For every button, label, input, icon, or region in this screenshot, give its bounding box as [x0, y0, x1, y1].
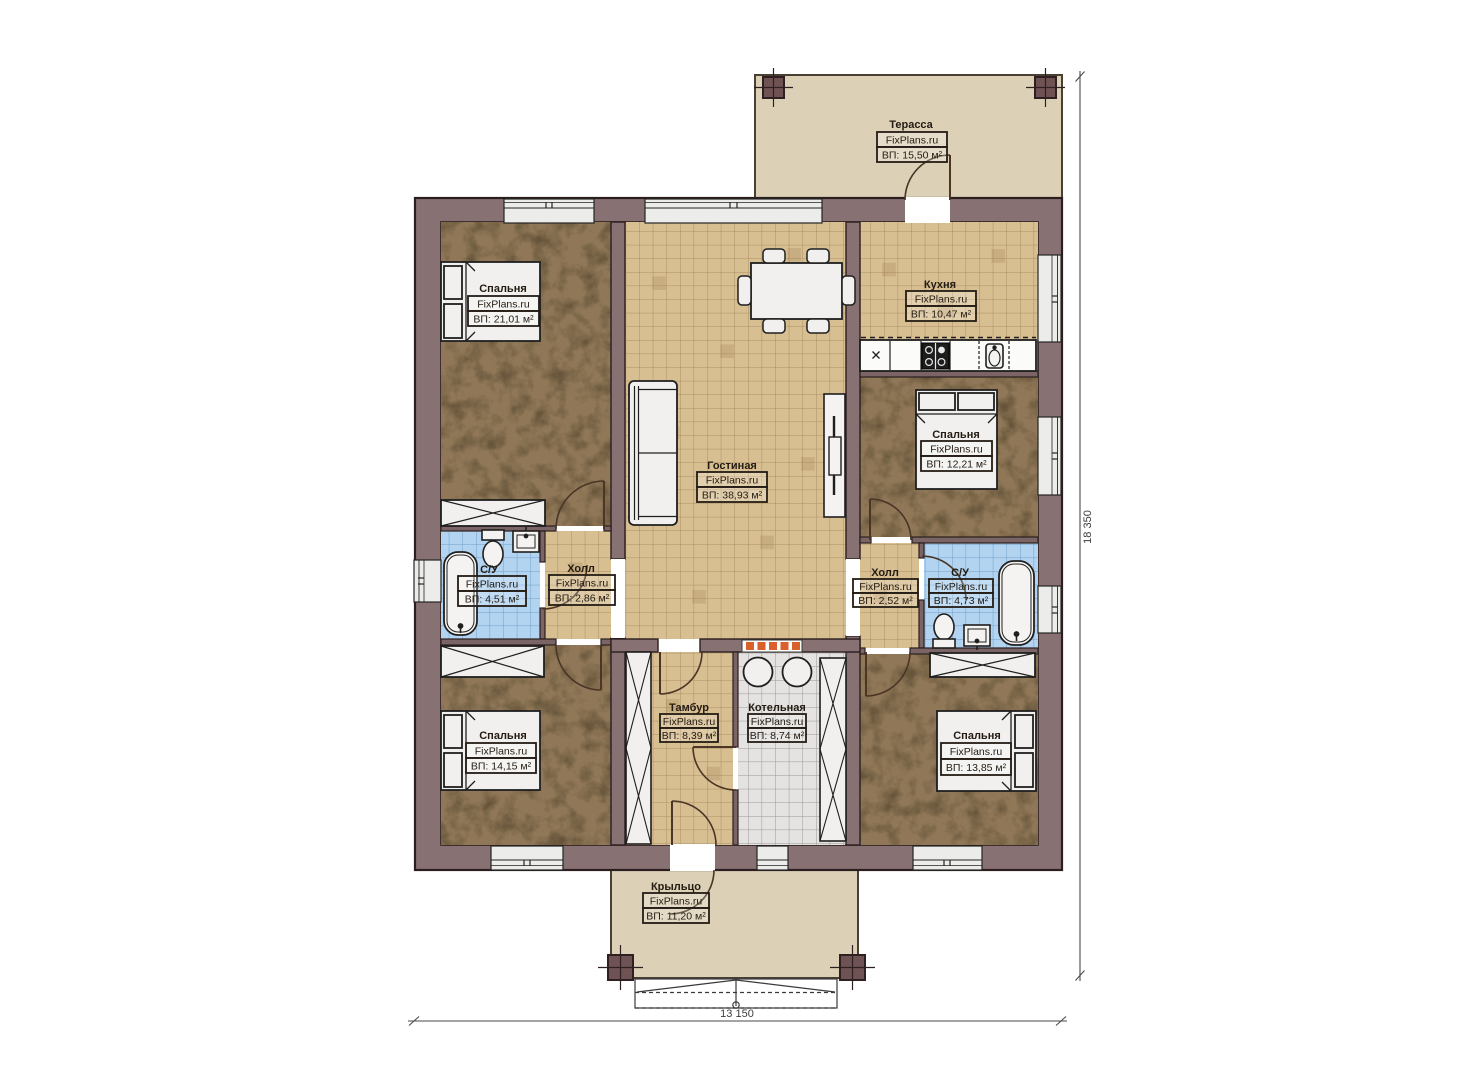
svg-text:ВП: 15,50 м²: ВП: 15,50 м² — [882, 150, 943, 162]
svg-text:FixPlans.ru: FixPlans.ru — [935, 581, 988, 593]
svg-text:ВП: 38,93 м²: ВП: 38,93 м² — [702, 490, 763, 502]
svg-text:Гостиная: Гостиная — [707, 460, 757, 472]
svg-text:С/У: С/У — [480, 564, 498, 576]
svg-text:ВП: 2,86 м²: ВП: 2,86 м² — [555, 593, 610, 605]
svg-text:FixPlans.ru: FixPlans.ru — [915, 294, 968, 306]
svg-text:Крыльцо: Крыльцо — [651, 881, 701, 893]
svg-text:ВП: 11,20 м²: ВП: 11,20 м² — [646, 911, 706, 923]
svg-text:ВП: 2,52 м²: ВП: 2,52 м² — [858, 595, 913, 607]
svg-text:ВП: 4,51 м²: ВП: 4,51 м² — [465, 594, 520, 606]
svg-text:ВП: 4,73 м²: ВП: 4,73 м² — [934, 595, 989, 607]
svg-text:ВП: 10,47 м²: ВП: 10,47 м² — [911, 309, 972, 321]
svg-text:FixPlans.ru: FixPlans.ru — [477, 299, 530, 311]
svg-text:FixPlans.ru: FixPlans.ru — [556, 578, 609, 590]
svg-text:ВП: 8,39 м²: ВП: 8,39 м² — [662, 730, 717, 742]
svg-text:Спальня: Спальня — [479, 730, 527, 742]
svg-text:Тамбур: Тамбур — [669, 702, 709, 714]
svg-text:FixPlans.ru: FixPlans.ru — [706, 475, 759, 487]
svg-text:ВП: 12,21 м²: ВП: 12,21 м² — [926, 459, 987, 471]
svg-text:18 350: 18 350 — [1082, 510, 1094, 544]
svg-text:Холл: Холл — [567, 563, 595, 575]
svg-text:Кухня: Кухня — [924, 279, 956, 291]
svg-text:Холл: Холл — [871, 567, 899, 579]
svg-text:ВП: 14,15 м²: ВП: 14,15 м² — [471, 761, 532, 773]
svg-text:FixPlans.ru: FixPlans.ru — [466, 579, 519, 591]
svg-text:Спальня: Спальня — [932, 429, 980, 441]
svg-text:FixPlans.ru: FixPlans.ru — [475, 746, 528, 758]
svg-text:Терасса: Терасса — [889, 119, 933, 131]
svg-text:Котельная: Котельная — [748, 702, 806, 714]
svg-text:Спальня: Спальня — [479, 283, 527, 295]
svg-text:ВП: 21,01 м²: ВП: 21,01 м² — [473, 314, 534, 326]
svg-text:С/У: С/У — [951, 567, 969, 579]
svg-text:FixPlans.ru: FixPlans.ru — [930, 444, 983, 456]
svg-text:FixPlans.ru: FixPlans.ru — [950, 746, 1003, 758]
svg-text:13 150: 13 150 — [720, 1008, 754, 1020]
svg-text:FixPlans.ru: FixPlans.ru — [751, 716, 804, 728]
svg-text:FixPlans.ru: FixPlans.ru — [859, 581, 912, 593]
svg-text:Спальня: Спальня — [953, 730, 1001, 742]
svg-text:FixPlans.ru: FixPlans.ru — [886, 135, 939, 147]
svg-text:FixPlans.ru: FixPlans.ru — [650, 896, 703, 908]
svg-text:ВП: 13,85 м²: ВП: 13,85 м² — [946, 762, 1007, 774]
svg-text:ВП: 8,74 м²: ВП: 8,74 м² — [750, 730, 805, 742]
svg-text:FixPlans.ru: FixPlans.ru — [663, 716, 716, 728]
